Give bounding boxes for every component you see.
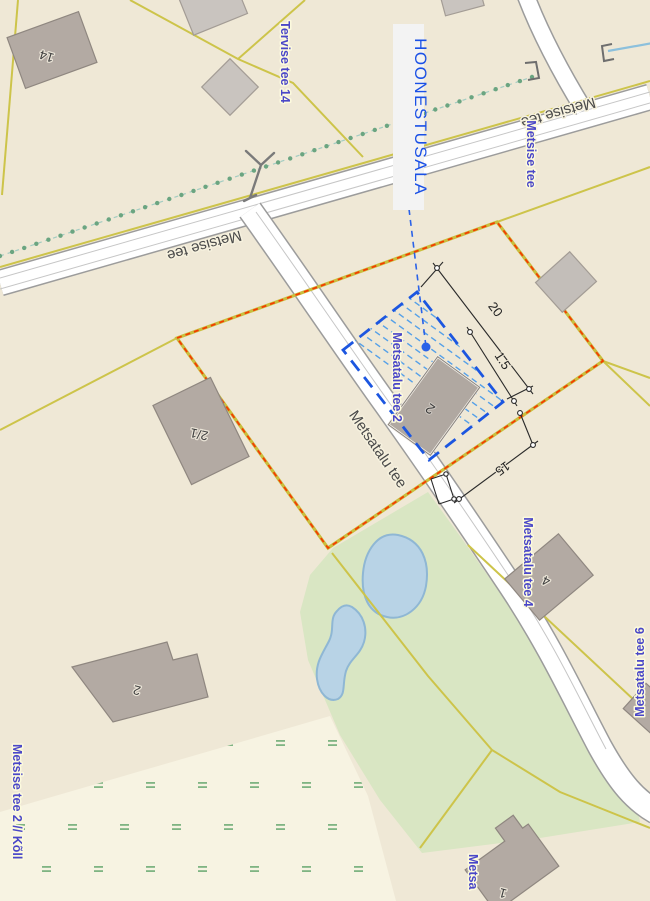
address-label-metsatalu-tee-4: Metsatalu tee 4 — [521, 517, 535, 607]
address-label-tervise-tee-14: Tervise tee 14 — [278, 21, 292, 103]
address-label-metsatalu-bottom: Metsa — [466, 854, 480, 890]
callout-label-text: HOONESTUSALA — [411, 38, 430, 196]
address-label-metsatalu-tee-6: Metsatalu tee 6 — [633, 627, 647, 717]
address-label-metsatalu-tee-2: Metsatalu tee 2 — [390, 332, 404, 422]
address-label-metsise-tee-2-koll: Metsise tee 2 // Kõll — [10, 744, 24, 859]
site-plan: 20 1.5 15 14 2/1 2 4 2 1 Metsise tee Met… — [0, 0, 650, 901]
site-plan-map-canvas[interactable]: 20 1.5 15 14 2/1 2 4 2 1 Metsise tee Met… — [0, 0, 650, 901]
callout-anchor-dot — [422, 343, 431, 352]
address-label-metsise-tee: Metsise tee — [524, 120, 538, 187]
